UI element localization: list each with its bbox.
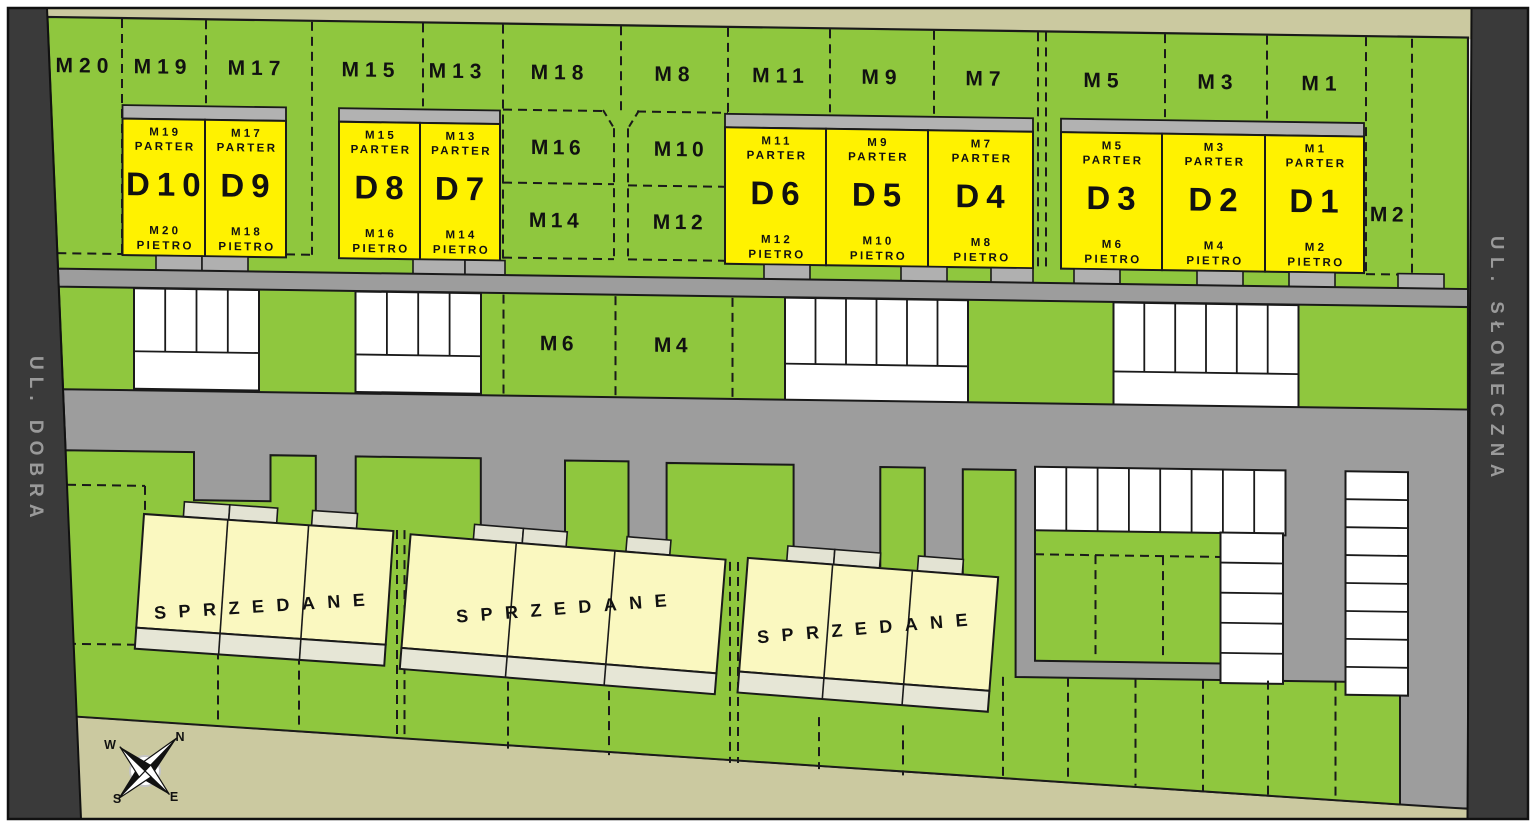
svg-text:M2: M2 [1305, 242, 1327, 254]
svg-text:PIETRO: PIETRO [137, 240, 194, 253]
svg-text:PIETRO: PIETRO [748, 249, 805, 262]
svg-text:PARTER: PARTER [1083, 154, 1144, 167]
svg-text:PARTER: PARTER [1286, 157, 1347, 170]
svg-text:M12: M12 [761, 234, 793, 246]
svg-text:PARTER: PARTER [135, 141, 196, 154]
svg-text:PIETRO: PIETRO [352, 243, 409, 256]
svg-text:PIETRO: PIETRO [218, 241, 275, 254]
svg-text:M9: M9 [861, 66, 902, 90]
svg-text:M13: M13 [446, 131, 478, 143]
svg-text:PIETRO: PIETRO [1287, 256, 1344, 269]
svg-text:M10: M10 [863, 235, 895, 247]
svg-text:W: W [104, 738, 116, 752]
svg-text:PARTER: PARTER [217, 142, 278, 155]
svg-text:M14: M14 [529, 209, 583, 233]
svg-text:D4: D4 [955, 177, 1011, 215]
svg-text:D5: D5 [852, 176, 908, 214]
svg-text:PIETRO: PIETRO [1084, 253, 1141, 266]
svg-text:D3: D3 [1086, 179, 1142, 217]
svg-text:M1: M1 [1305, 143, 1327, 155]
svg-text:M6: M6 [1102, 239, 1124, 251]
svg-text:M15: M15 [342, 58, 401, 82]
svg-text:D1: D1 [1289, 182, 1345, 220]
svg-text:M19: M19 [149, 126, 181, 138]
svg-text:M8: M8 [654, 63, 695, 87]
svg-text:PIETRO: PIETRO [953, 252, 1010, 265]
svg-text:M3: M3 [1204, 142, 1226, 154]
svg-text:UL. DOBRA: UL. DOBRA [25, 356, 46, 525]
svg-text:M14: M14 [446, 229, 478, 241]
svg-text:M5: M5 [1102, 140, 1124, 152]
svg-text:M5: M5 [1083, 69, 1124, 93]
svg-text:M16: M16 [365, 228, 397, 240]
svg-text:M11: M11 [752, 64, 810, 88]
svg-text:M15: M15 [365, 130, 397, 142]
svg-text:M17: M17 [228, 57, 287, 81]
svg-text:D9: D9 [220, 166, 276, 204]
svg-text:M1: M1 [1301, 72, 1342, 96]
svg-text:N: N [175, 730, 184, 744]
svg-text:M20: M20 [149, 225, 181, 237]
svg-text:PARTER: PARTER [1185, 156, 1246, 169]
svg-text:M18: M18 [231, 226, 263, 238]
svg-text:M12: M12 [653, 211, 707, 235]
svg-text:PARTER: PARTER [952, 153, 1013, 166]
svg-text:PIETRO: PIETRO [850, 250, 907, 263]
svg-text:M8: M8 [971, 237, 993, 249]
svg-text:M7: M7 [965, 67, 1006, 91]
svg-text:M3: M3 [1197, 71, 1238, 95]
svg-text:M7: M7 [971, 138, 993, 150]
svg-text:D8: D8 [354, 168, 410, 206]
svg-text:PARTER: PARTER [848, 151, 909, 164]
svg-text:M18: M18 [531, 61, 590, 85]
svg-text:M4: M4 [1204, 240, 1226, 252]
svg-text:M4: M4 [654, 334, 692, 358]
svg-text:M10: M10 [654, 138, 708, 162]
svg-text:M16: M16 [531, 136, 585, 160]
svg-text:PARTER: PARTER [747, 150, 808, 163]
svg-text:D6: D6 [750, 174, 806, 212]
svg-text:PIETRO: PIETRO [1186, 255, 1243, 268]
svg-text:D2: D2 [1188, 181, 1244, 219]
svg-text:M13: M13 [429, 59, 488, 83]
svg-text:M20: M20 [56, 54, 115, 78]
svg-text:D10: D10 [126, 165, 208, 203]
svg-text:S: S [113, 792, 121, 806]
svg-text:M2: M2 [1370, 203, 1408, 227]
svg-text:M6: M6 [540, 332, 578, 356]
svg-text:PARTER: PARTER [351, 144, 412, 157]
svg-text:D7: D7 [435, 170, 491, 208]
svg-text:M9: M9 [867, 137, 889, 149]
svg-text:E: E [170, 790, 178, 804]
svg-text:M17: M17 [231, 128, 263, 140]
svg-text:M11: M11 [761, 135, 792, 147]
svg-text:PARTER: PARTER [431, 145, 492, 158]
svg-text:PIETRO: PIETRO [433, 244, 490, 257]
svg-text:UL. SŁONECZNA: UL. SŁONECZNA [1487, 236, 1508, 485]
svg-text:M19: M19 [134, 55, 193, 79]
